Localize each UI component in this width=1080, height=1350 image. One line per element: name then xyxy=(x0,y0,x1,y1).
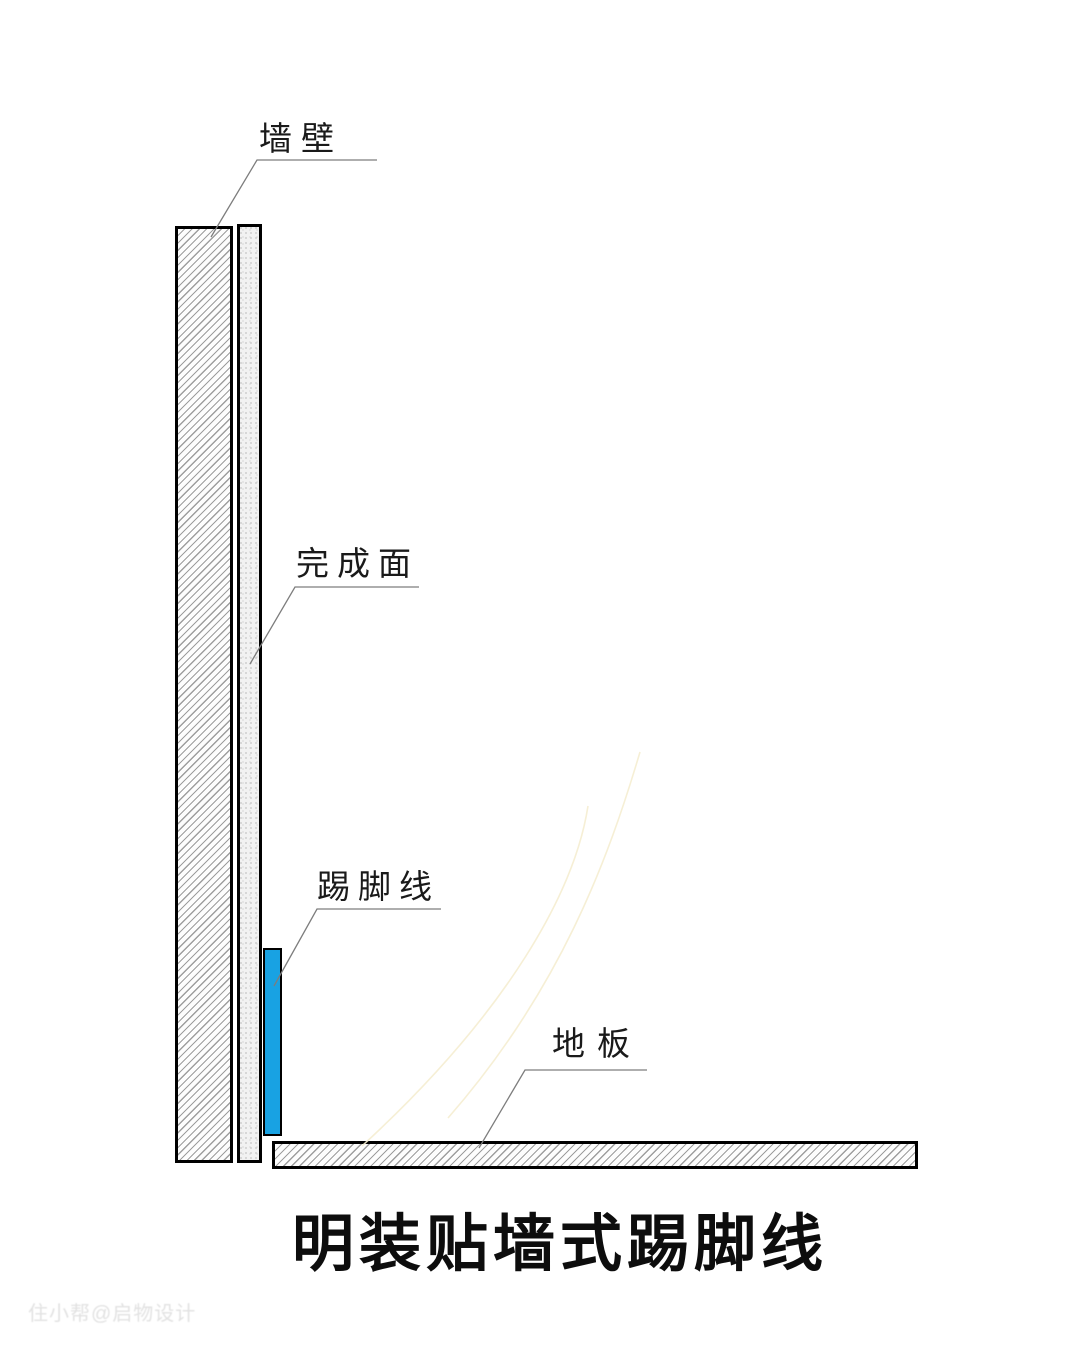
floor-leader-line xyxy=(479,1070,647,1148)
skirting-label: 踢脚线 xyxy=(317,870,440,903)
wall-label: 墙壁 xyxy=(259,122,343,155)
wall-leader-line xyxy=(211,160,377,237)
skirting-board xyxy=(263,948,282,1136)
wall-section-hatched xyxy=(175,226,233,1163)
floor-slab-hatched xyxy=(272,1141,918,1169)
diagram-canvas: 墙壁 完成面 踢脚线 地板 明装贴墙式踢脚线 住小帮@启物设计 xyxy=(0,0,1080,1350)
finish-surface-layer xyxy=(237,224,262,1163)
finish-surface-label: 完成面 xyxy=(296,547,419,580)
skirting-leader-line xyxy=(274,909,441,986)
paper-scratch-mark xyxy=(362,806,588,1146)
watermark-text: 住小帮@启物设计 xyxy=(28,1297,196,1326)
finish-surface-leader-line xyxy=(250,587,419,664)
paper-scratch-mark xyxy=(448,752,640,1118)
floor-label: 地板 xyxy=(552,1027,642,1060)
diagram-title: 明装贴墙式踢脚线 xyxy=(292,1212,828,1277)
